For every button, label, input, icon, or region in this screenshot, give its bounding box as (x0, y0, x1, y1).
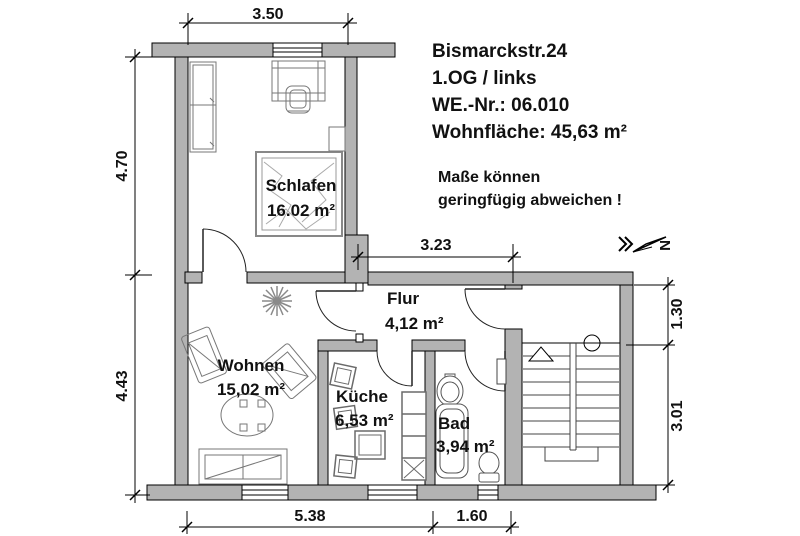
stair-bottom-outline (545, 447, 598, 461)
window-wohnen (242, 485, 288, 500)
dim-bottom-right: 1.60 (456, 508, 487, 525)
wall (368, 272, 633, 285)
wall (412, 340, 465, 351)
north-arrow-icon: N (619, 237, 673, 252)
wall (318, 351, 328, 485)
window-bad (478, 485, 498, 500)
partition-walls (356, 283, 363, 342)
title-unit-number: WE.-Nr.: 06.010 (432, 95, 569, 116)
dim-bottom-left: 5.38 (294, 508, 325, 525)
stair-divider (570, 343, 576, 450)
desk (272, 61, 325, 101)
room-name-bad: Bad (438, 414, 470, 433)
desk-chair (286, 86, 310, 113)
wall (505, 285, 522, 289)
wall (498, 485, 656, 500)
stair-up-arrow (529, 347, 553, 361)
title-floor: 1.OG / links (432, 68, 537, 89)
partition-stub (356, 283, 363, 291)
wall (185, 272, 202, 283)
title-block: Bismarckstr.24 1.OG / links WE.-Nr.: 06.… (432, 41, 627, 209)
wall (322, 43, 395, 57)
wardrobe (190, 62, 216, 152)
nightstand (329, 127, 345, 151)
washbasin (437, 374, 463, 406)
dim-right-lower: 3.01 (669, 400, 686, 431)
dim-left-upper: 4.70 (114, 150, 131, 181)
floorplan-drawing: 3.50 4.70 4.43 3.23 1.30 3.01 5.38 1.60 … (0, 0, 800, 536)
wall (175, 57, 188, 485)
door-entrance (465, 289, 505, 329)
wall (417, 485, 478, 500)
wall (247, 272, 345, 283)
title-note-line1: Maße können (438, 169, 540, 186)
north-label: N (656, 240, 673, 251)
room-area-kueche: 6,53 m² (335, 411, 394, 430)
kitchen-chair (334, 455, 357, 478)
wall (620, 285, 633, 485)
stair-steps-right (576, 356, 619, 447)
room-area-bad: 3,94 m² (436, 437, 495, 456)
wall (318, 340, 377, 351)
wall (345, 57, 357, 237)
door-wohnen-flur (316, 291, 356, 331)
kitchen-counter (402, 392, 426, 480)
room-name-kueche: Küche (336, 387, 388, 406)
plant (262, 286, 292, 316)
door-schlafen (203, 229, 246, 272)
room-area-schlafen: 16.02 m² (267, 201, 335, 220)
partition-stub (356, 334, 363, 342)
dim-middle: 3.23 (420, 237, 451, 254)
kitchen-chair (330, 363, 356, 389)
radiator (497, 359, 506, 384)
toilet (479, 452, 499, 482)
room-name-flur: Flur (387, 289, 419, 308)
dim-top: 3.50 (252, 6, 283, 23)
title-living-area: Wohnfläche: 45,63 m² (432, 122, 627, 143)
window-kueche (368, 485, 417, 500)
title-address: Bismarckstr.24 (432, 41, 568, 62)
stair-steps-left (523, 356, 570, 447)
room-area-wohnen: 15,02 m² (217, 380, 285, 399)
coffee-table (221, 394, 273, 436)
dim-right-upper: 1.30 (669, 298, 686, 329)
window-schlafen (273, 43, 322, 57)
wall (152, 43, 273, 57)
room-name-schlafen: Schlafen (266, 176, 337, 195)
kitchen-table (355, 431, 385, 459)
room-name-wohnen: Wohnen (218, 356, 285, 375)
title-note-line2: geringfügig abweichen ! (438, 192, 622, 209)
room-area-flur: 4,12 m² (385, 314, 444, 333)
wall (147, 485, 242, 500)
sofa (199, 449, 287, 484)
floorplan-canvas: 3.50 4.70 4.43 3.23 1.30 3.01 5.38 1.60 … (0, 0, 800, 536)
wall (288, 485, 368, 500)
door-kueche (377, 351, 412, 386)
wall (505, 329, 522, 485)
dim-left-lower: 4.43 (114, 370, 131, 401)
